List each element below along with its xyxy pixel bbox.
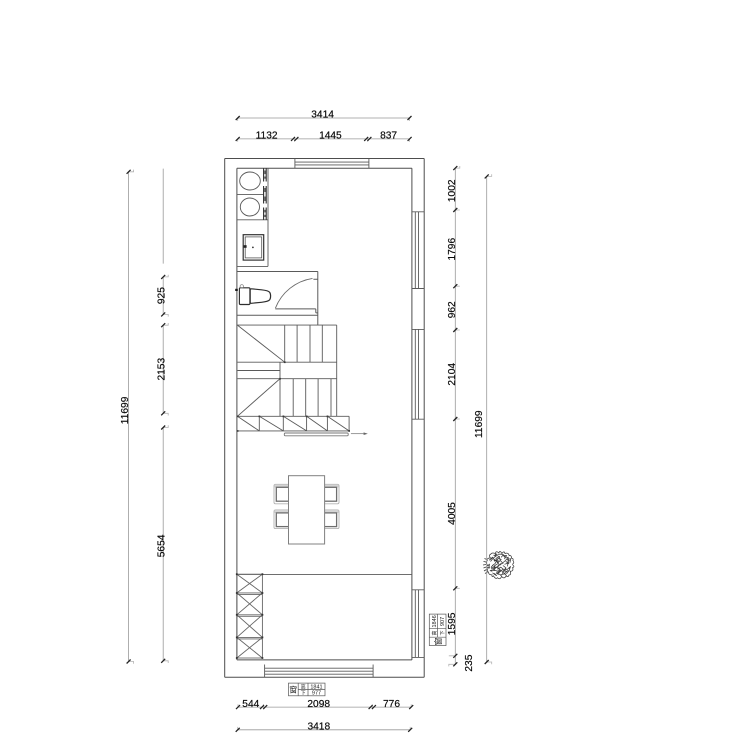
- svg-text:高: 高: [431, 630, 438, 635]
- svg-text:235: 235: [464, 654, 475, 671]
- svg-text:776: 776: [383, 699, 400, 710]
- svg-text:11699: 11699: [120, 396, 131, 424]
- svg-text:962: 962: [447, 301, 458, 318]
- svg-text:544: 544: [242, 699, 259, 710]
- svg-text:3414: 3414: [311, 110, 334, 121]
- svg-text:5654: 5654: [156, 534, 167, 557]
- svg-text:1841: 1841: [310, 684, 322, 690]
- svg-text:窗: 窗: [289, 684, 297, 694]
- svg-text:高: 高: [301, 683, 306, 690]
- svg-text:907: 907: [440, 617, 446, 626]
- svg-text:窗: 窗: [433, 637, 443, 645]
- svg-text:1595: 1595: [447, 612, 458, 635]
- svg-text:925: 925: [156, 287, 167, 304]
- svg-text:4005: 4005: [447, 502, 458, 525]
- svg-text:下: 下: [301, 691, 306, 697]
- svg-text:977: 977: [312, 691, 321, 697]
- svg-text:1132: 1132: [256, 131, 278, 142]
- svg-text:3418: 3418: [307, 722, 330, 733]
- svg-text:837: 837: [380, 131, 397, 142]
- svg-text:下: 下: [440, 630, 446, 635]
- svg-text:11699: 11699: [474, 410, 485, 438]
- svg-text:1846: 1846: [432, 615, 438, 627]
- svg-text:2104: 2104: [447, 363, 458, 386]
- svg-text:2153: 2153: [156, 358, 167, 381]
- svg-text:2098: 2098: [307, 699, 330, 710]
- svg-text:1002: 1002: [447, 179, 458, 202]
- svg-text:1445: 1445: [319, 131, 342, 142]
- svg-text:1796: 1796: [447, 238, 458, 261]
